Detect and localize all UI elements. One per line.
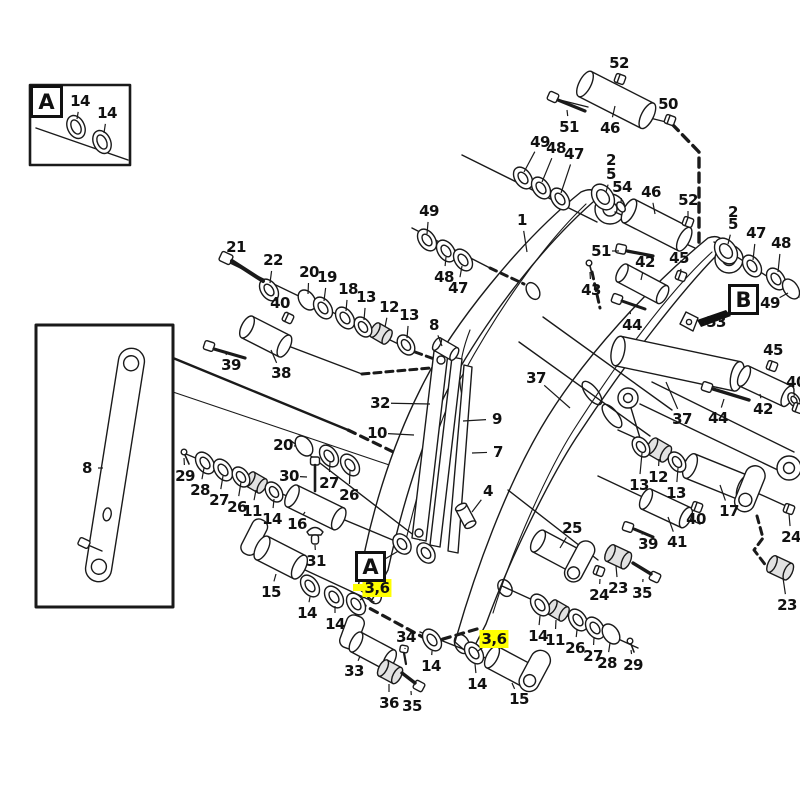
part-label-13: 13 (666, 484, 686, 502)
part-label-44: 44 (622, 316, 642, 334)
part-label-28: 28 (597, 654, 617, 672)
part-label-47: 47 (448, 279, 468, 297)
part-label-42: 42 (753, 400, 773, 418)
part-label-33: 33 (344, 662, 364, 680)
part-label-34: 34 (396, 628, 416, 646)
part-label-53: 53 (706, 313, 726, 331)
part-label-13: 13 (629, 476, 649, 494)
part-label-39: 39 (221, 356, 241, 374)
part-label-17: 17 (719, 502, 739, 520)
part-label-43: 43 (581, 281, 601, 299)
part-label-46: 46 (600, 119, 620, 137)
part-label-23: 23 (777, 596, 797, 614)
part-label-47: 47 (564, 145, 584, 163)
part-label-10: 10 (367, 424, 387, 442)
part-label-52: 52 (609, 54, 629, 72)
part-label-14: 14 (421, 657, 441, 675)
part-label-46: 46 (641, 183, 661, 201)
part-label-45: 45 (669, 249, 689, 267)
part-label-40: 40 (686, 510, 706, 528)
part-label-23: 23 (608, 579, 628, 597)
part-label-29: 29 (623, 656, 643, 674)
part-label-27: 27 (209, 491, 229, 509)
part-label-7: 7 (493, 443, 503, 461)
part-label-14: 14 (97, 104, 117, 122)
part-label-20: 20 (273, 436, 293, 454)
part-label-48: 48 (771, 234, 791, 252)
part-label-49: 49 (760, 294, 780, 312)
part-label-14: 14 (325, 615, 345, 633)
part-label-37: 37 (526, 369, 546, 387)
part-label-21: 21 (226, 238, 246, 256)
part-label-52: 52 (678, 191, 698, 209)
leader-lines (0, 0, 800, 800)
part-label-5: 5 (728, 215, 738, 233)
part-label-8: 8 (82, 459, 92, 477)
part-label-39: 39 (638, 535, 658, 553)
part-label-28: 28 (190, 481, 210, 499)
part-label-13: 13 (399, 306, 419, 324)
part-label-11: 11 (545, 631, 565, 649)
part-label-30: 30 (279, 467, 299, 485)
part-label-45: 45 (763, 341, 783, 359)
part-label-18: 18 (338, 280, 358, 298)
part-label-26: 26 (565, 639, 585, 657)
part-label-35: 35 (402, 697, 422, 715)
part-label-15: 15 (509, 690, 529, 708)
view-ref-b-callout: B (728, 284, 759, 315)
part-label-48: 48 (546, 139, 566, 157)
part-label-8: 8 (429, 316, 439, 334)
part-label-42: 42 (635, 253, 655, 271)
part-label-31: 31 (306, 552, 326, 570)
part-label-22: 22 (263, 251, 283, 269)
part-label-9: 9 (492, 410, 502, 428)
part-label-40: 40 (270, 294, 290, 312)
part-label-14: 14 (262, 510, 282, 528)
view-ref-a-inset: A (30, 85, 63, 118)
part-label-49: 49 (419, 202, 439, 220)
part-label-36: 36 (379, 694, 399, 712)
part-label-12: 12 (648, 468, 668, 486)
part-label-1: 1 (517, 211, 527, 229)
view-ref-a-callout: A (355, 551, 386, 582)
part-label-13: 13 (356, 288, 376, 306)
part-label-36: 3,6 (479, 630, 508, 648)
part-label-4: 4 (483, 482, 493, 500)
part-label-16: 16 (287, 515, 307, 533)
part-label-15: 15 (261, 583, 281, 601)
part-label-27: 27 (319, 474, 339, 492)
part-label-37: 37 (672, 410, 692, 428)
part-label-38: 38 (271, 364, 291, 382)
part-label-32: 32 (370, 394, 390, 412)
part-label-51: 51 (591, 242, 611, 260)
part-label-40: 40 (786, 373, 800, 391)
part-label-35: 35 (632, 584, 652, 602)
part-label-51: 51 (559, 118, 579, 136)
part-label-14: 14 (70, 92, 90, 110)
part-label-14: 14 (297, 604, 317, 622)
part-label-25: 25 (562, 519, 582, 537)
part-label-41: 41 (667, 533, 687, 551)
part-label-24: 24 (589, 586, 609, 604)
part-label-14: 14 (467, 675, 487, 693)
part-label-11: 11 (242, 502, 262, 520)
part-label-47: 47 (746, 224, 766, 242)
part-label-54: 54 (612, 178, 632, 196)
part-label-24: 24 (781, 528, 800, 546)
parts-diagram: 5250514649484725544652491254748215145422… (0, 0, 800, 800)
part-label-12: 12 (379, 298, 399, 316)
part-label-20: 20 (299, 263, 319, 281)
part-label-26: 26 (339, 486, 359, 504)
part-label-44: 44 (708, 409, 728, 427)
part-label-50: 50 (658, 95, 678, 113)
part-label-19: 19 (317, 268, 337, 286)
